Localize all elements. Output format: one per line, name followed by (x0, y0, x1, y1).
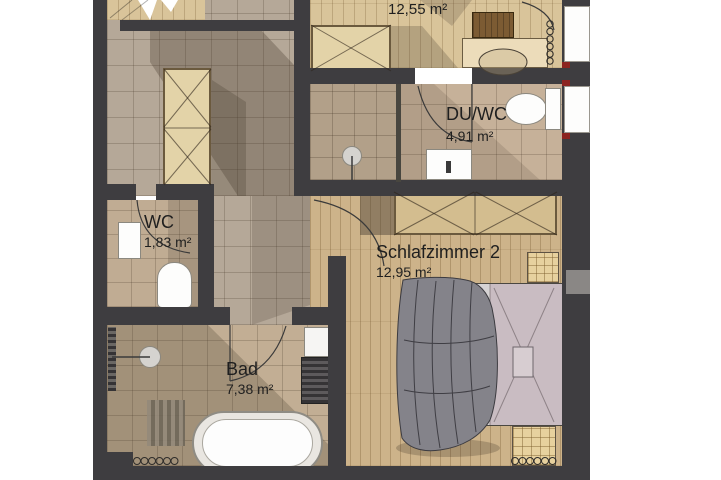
room-top-area-label: 12,55 m² (388, 2, 447, 17)
bedroom-name-label: Schlafzimmer 2 (376, 243, 500, 261)
bad-name-label: Bad (226, 360, 258, 378)
wc-name-label: WC (144, 213, 174, 231)
stair-cut-icon (110, 0, 178, 20)
bedroom-area-label: 12,95 m² (376, 265, 431, 279)
bad-area-label: 7,38 m² (226, 382, 273, 396)
floor-plan-canvas: 12,55 m² DU/WC 4,91 m² WC 1,83 m² Schlaf… (0, 0, 721, 480)
wc-area-label: 1,83 m² (144, 235, 191, 249)
bed-tray (513, 347, 533, 377)
linework-overlay (0, 0, 721, 480)
chair-icon (479, 49, 527, 75)
duvet-icon (397, 277, 498, 450)
duwc-area-label: 4,91 m² (446, 129, 493, 143)
duwc-name-label: DU/WC (446, 105, 507, 123)
